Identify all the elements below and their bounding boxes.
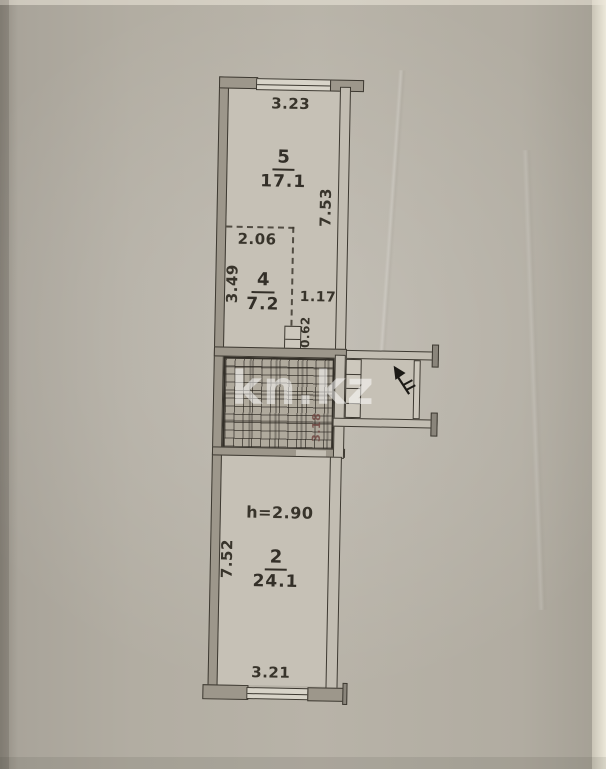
dimension-room4-width: 2.06 — [237, 230, 276, 249]
dimension-duct-width: 0.62 — [298, 316, 313, 348]
window-bottom — [246, 687, 308, 700]
room2-area: 24.1 — [252, 571, 298, 592]
wall-bottom-right-segment — [307, 687, 345, 702]
floorplan-drawing: 3.23 7.53 2.06 3.49 1.17 0.62 3.18 h=2.9… — [0, 0, 606, 769]
dimension-corridor-width: 1.17 — [300, 289, 337, 306]
window-top — [256, 78, 332, 91]
dimension-top-width: 3.23 — [271, 94, 310, 113]
entry-steps — [345, 359, 362, 418]
room2-number: 2 — [264, 548, 287, 570]
window-frame-line — [257, 84, 331, 86]
wall-entry-bottom — [332, 418, 437, 429]
room4-area: 7.2 — [246, 294, 280, 315]
room4-label: 4 7.2 — [246, 270, 280, 315]
wall-top-left-segment — [219, 76, 258, 89]
room5-area: 17.1 — [260, 171, 306, 192]
dimension-room2-height: 7.52 — [218, 539, 237, 578]
wall-bottom-endcap — [342, 683, 347, 705]
room5-label: 5 17.1 — [260, 147, 307, 192]
room5-number: 5 — [272, 148, 295, 170]
door-opening-room2 — [296, 450, 326, 457]
wall-entry-top-endcap — [432, 345, 439, 368]
scanned-floorplan-photo: 3.23 7.53 2.06 3.49 1.17 0.62 3.18 h=2.9… — [0, 0, 606, 769]
room2-label: 2 24.1 — [252, 547, 299, 592]
window-frame-line — [247, 693, 307, 695]
room4-number: 4 — [252, 271, 275, 293]
dimension-stair-mark: 3.18 — [310, 413, 324, 442]
dimension-room4-height: 3.49 — [223, 264, 242, 303]
ceiling-height-note: h=2.90 — [246, 502, 314, 522]
dimension-right-height: 7.53 — [316, 188, 335, 227]
entry-direction-arrow-icon — [381, 364, 418, 401]
dimension-bottom-width: 3.21 — [251, 663, 290, 682]
wall-bottom-left-segment — [202, 684, 248, 700]
wall-entry-bottom-endcap — [430, 413, 437, 437]
